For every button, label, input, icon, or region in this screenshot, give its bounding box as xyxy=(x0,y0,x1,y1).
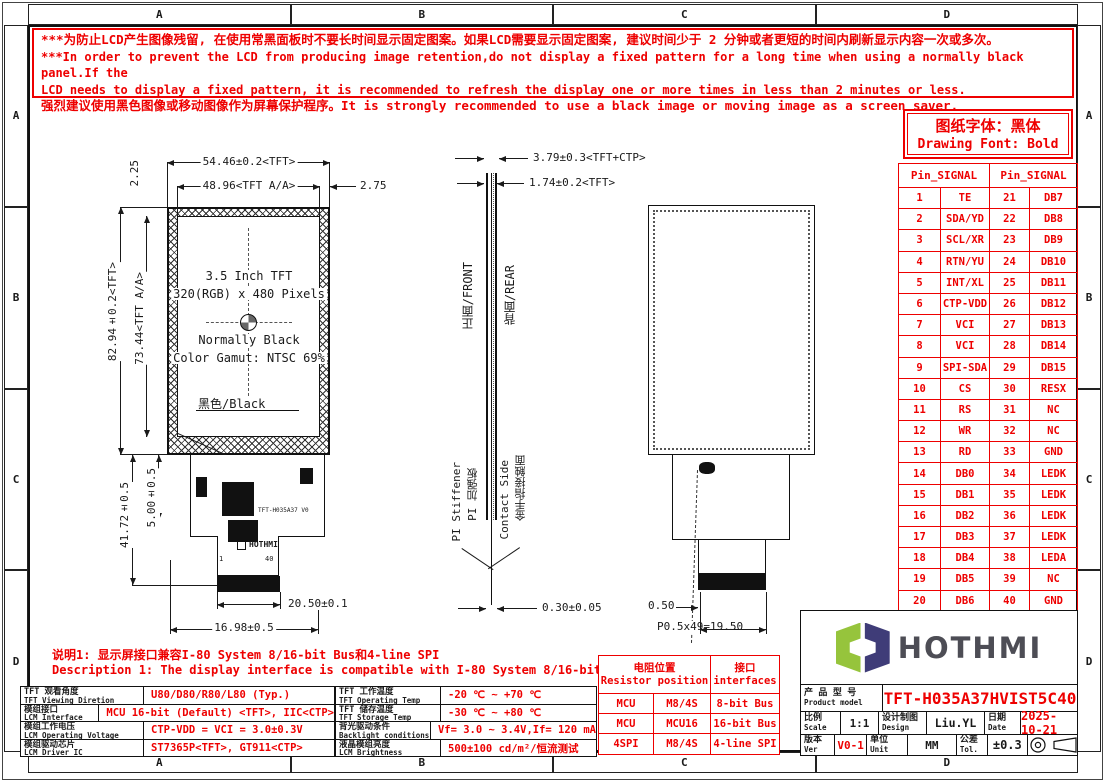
zone-label: B xyxy=(291,4,554,25)
pin-signal: NC xyxy=(1030,400,1077,420)
dim-fpc-len: 41.72±0.5 xyxy=(116,482,133,548)
dim-line-right-offset xyxy=(330,186,356,187)
spec-label: 模组驱动芯片 LCM Driver IC xyxy=(21,740,144,758)
zone-label: A xyxy=(1077,25,1101,207)
pin-signal: DB3 xyxy=(941,527,990,547)
zone-label: C xyxy=(4,389,28,571)
zone-strip-top: ABCD xyxy=(28,4,1078,25)
fpc-pin40-label: 40 xyxy=(265,556,273,562)
pin-number: 32 xyxy=(990,421,1030,441)
warning-line-en1: ***In order to prevent the LCD from prod… xyxy=(41,49,1065,82)
dim-side-tft: 1.74±0.2<TFT> xyxy=(527,177,617,189)
pin-table-row: 1 TE 21 DB7 xyxy=(899,188,1077,209)
zone-label: D xyxy=(816,4,1079,25)
font-note-zh: 图纸字体：黑体 xyxy=(908,116,1068,136)
version-value: V0-1 xyxy=(835,735,867,755)
pin-table-row: 12 WR 32 NC xyxy=(899,421,1077,442)
hothmi-logo-icon xyxy=(836,623,890,673)
resistor-table-header: 电阻位置 Resistor position 接口 interfaces xyxy=(599,656,779,694)
spec-label: TFT 工作温度 TFT Operating Temp xyxy=(336,687,441,704)
pin-number: 7 xyxy=(899,315,941,335)
zone-label: D xyxy=(1077,570,1101,752)
pin-signal: DB5 xyxy=(941,569,990,589)
panel-spec-line2: 320(RGB) x 480 Pixels xyxy=(171,288,327,300)
pin-number: 31 xyxy=(990,400,1030,420)
fpc-model-label: TFT-H035A37 V0 xyxy=(258,508,309,514)
ext-line xyxy=(318,610,319,634)
resistor-row: 4SPI M8/4S 4-line SPI xyxy=(599,734,779,754)
dim-seg xyxy=(455,158,484,159)
pin-table-row: 8 VCI 28 DB14 xyxy=(899,336,1077,357)
pin-signal: DB13 xyxy=(1030,315,1077,335)
spec-label: 模组接口 LCM Interface xyxy=(21,705,99,722)
zone-strip-left: ABCD xyxy=(4,25,28,752)
center-mark-icon xyxy=(240,314,257,331)
pin-signal: SCL/XR xyxy=(941,230,990,250)
spec-label: TFT 储存温度 TFT Storage Temp xyxy=(336,705,441,722)
spec-value: -30 ℃ ~ +80 ℃ xyxy=(441,705,596,722)
panel-spec-line1: 3.5 Inch TFT xyxy=(204,270,295,282)
date-value: 2025-10-21 xyxy=(1021,712,1077,734)
spec-value: Vf= 3.0 ~ 3.4V,If= 120 mA xyxy=(431,722,596,739)
pin-number: 23 xyxy=(990,230,1030,250)
ext-line xyxy=(177,186,178,216)
spec-value: CTP-VDD = VCI = 3.0±0.3V xyxy=(144,722,334,739)
pin-table-row: 3 SCL/XR 23 DB9 xyxy=(899,230,1077,251)
pin-signal: CS xyxy=(941,379,990,399)
fpc-component xyxy=(196,477,207,497)
zone-label: A xyxy=(28,4,291,25)
pin-signal: DB9 xyxy=(1030,230,1077,250)
spec-value: MCU 16-bit (Default) <TFT>, IIC<CTP> xyxy=(99,705,334,722)
rear-fpc-upper xyxy=(672,455,790,540)
pin-table-row: 20 DB6 40 GND xyxy=(899,591,1077,612)
spec-row: TFT 工作温度 TFT Operating Temp -20 ℃ ~ +70 … xyxy=(336,687,596,705)
dim-conn-w: 20.50±0.1 xyxy=(286,598,350,610)
title-block: HOTHMI 产 品 型 号 Product model TFT-H035A37… xyxy=(800,610,1078,756)
pin-table-row: 16 DB2 36 LEDK xyxy=(899,506,1077,527)
pin-table-row: 2 SDA/YD 22 DB8 xyxy=(899,209,1077,230)
zone-label: C xyxy=(553,4,816,25)
pin-signal: DB7 xyxy=(1030,188,1077,208)
pin-table-row: 17 DB3 37 LEDK xyxy=(899,527,1077,548)
pin-signal: DB4 xyxy=(941,548,990,568)
pin-table-header: Pin_SIGNAL Pin_SIGNAL xyxy=(899,164,1077,188)
spec-row: TFT 储存温度 TFT Storage Temp -30 ℃ ~ +80 ℃ xyxy=(336,705,596,723)
fpc-pin1-label: 1 xyxy=(219,556,223,562)
pin-signal: DB1 xyxy=(941,485,990,505)
rear-view-solder-dots xyxy=(653,210,810,450)
fpc-ic xyxy=(222,482,254,516)
rear-connector xyxy=(698,574,766,590)
pin-number: 19 xyxy=(899,569,941,589)
resistor-row: MCU M8/4S 8-bit Bus xyxy=(599,694,779,714)
warning-line-zh: ***为防止LCD产生图像残留, 在使用常黑面板时不要长时间显示固定图案。如果L… xyxy=(41,32,1065,49)
side-rear-label: 背面/REAR xyxy=(504,265,517,325)
pin-signal: CTP-VDD xyxy=(941,294,990,314)
pin-number: 10 xyxy=(899,379,941,399)
pin-signal: DB11 xyxy=(1030,273,1077,293)
side-stiffener-zh: PI 加强板 xyxy=(466,468,479,521)
pin-table-row: 10 CS 30 RESX xyxy=(899,379,1077,400)
pin-signal: SPI-SDA xyxy=(941,358,990,378)
fpc-logo-text: HOTHMI xyxy=(249,542,278,548)
dim-fpc-5: 5.00±0.5 xyxy=(143,468,160,527)
dim-line-conn-w xyxy=(217,604,280,605)
pin-table-row: 18 DB4 38 LEDA xyxy=(899,548,1077,569)
spec-table-left: TFT 观看角度 TFT Viewing Diretion U80/D80/R8… xyxy=(20,686,335,757)
panel-spec-line4: Color Gamut: NTSC 69% xyxy=(171,352,327,364)
ext-line xyxy=(120,207,167,208)
side-view-fpc-line xyxy=(491,520,492,605)
tolerance-value: ±0.3 xyxy=(988,735,1028,755)
side-contact-en: Contact Side xyxy=(498,460,511,539)
dim-height-tft: 82.94±0.2<TFT> xyxy=(104,262,121,361)
unit-value: MM xyxy=(908,735,957,755)
ext-line xyxy=(766,592,767,634)
pin-number: 34 xyxy=(990,463,1030,483)
fpc-connector xyxy=(217,576,280,592)
pin-number: 12 xyxy=(899,421,941,441)
pin-signal: GND xyxy=(1030,442,1077,462)
pin-signal: DB14 xyxy=(1030,336,1077,356)
spec-row: TFT 观看角度 TFT Viewing Diretion U80/D80/R8… xyxy=(21,687,334,705)
spec-row: 模组驱动芯片 LCM Driver IC ST7365P<TFT>, GT911… xyxy=(21,740,334,758)
font-note-en: Drawing Font: Bold xyxy=(908,136,1068,154)
pin-number: 30 xyxy=(990,379,1030,399)
dim-seg xyxy=(458,608,486,609)
pin-table-row: 11 RS 31 NC xyxy=(899,400,1077,421)
pin-number: 9 xyxy=(899,358,941,378)
pin-signal: LEDK xyxy=(1030,463,1077,483)
pin-table-row: 4 RTN/YU 24 DB10 xyxy=(899,252,1077,273)
fpc-component xyxy=(228,520,258,542)
resistor-header-position: 电阻位置 Resistor position xyxy=(599,656,711,693)
logo: HOTHMI xyxy=(801,611,1077,685)
pin-table-row: 15 DB1 35 LEDK xyxy=(899,485,1077,506)
spec-row: 液晶模组亮度 LCM Brightness 500±100 cd/m²/恒流测试 xyxy=(336,740,596,758)
pin-signal: NC xyxy=(1030,569,1077,589)
pin-number: 36 xyxy=(990,506,1030,526)
pin-table-row: 19 DB5 39 NC xyxy=(899,569,1077,590)
warning-box: ***为防止LCD产生图像残留, 在使用常黑面板时不要长时间显示固定图案。如果L… xyxy=(32,28,1074,98)
ext-line xyxy=(132,585,217,586)
scale-value: 1:1 xyxy=(841,712,879,734)
pin-number: 22 xyxy=(990,209,1030,229)
fpc-component xyxy=(300,468,313,484)
pin-signal: WR xyxy=(941,421,990,441)
pin-number: 24 xyxy=(990,252,1030,272)
design-value: Liu.YL xyxy=(927,712,985,734)
ext-line xyxy=(217,592,218,609)
pin-signal: DB10 xyxy=(1030,252,1077,272)
model-label-en: Product model xyxy=(804,699,882,708)
pin-number: 25 xyxy=(990,273,1030,293)
black-color-label: 黑色/Black xyxy=(196,398,299,411)
title-row-version: 版本 Ver V0-1 单位 Unit MM 公差 Tol. ±0.3 xyxy=(801,735,1077,755)
dim-side-total: 3.79±0.3<TFT+CTP> xyxy=(531,152,648,164)
pin-number: 18 xyxy=(899,548,941,568)
dim-conn-off: 16.98±0.5 xyxy=(212,622,276,634)
zone-strip-right: ABCD xyxy=(1077,25,1101,752)
pin-number: 4 xyxy=(899,252,941,272)
resistor-table: 电阻位置 Resistor position 接口 interfaces MCU… xyxy=(598,655,780,755)
pin-number: 35 xyxy=(990,485,1030,505)
pin-number: 29 xyxy=(990,358,1030,378)
pin-number: 5 xyxy=(899,273,941,293)
pin-signal: SDA/YD xyxy=(941,209,990,229)
dim-seg xyxy=(676,607,698,608)
pin-number: 37 xyxy=(990,527,1030,547)
pin-signal: VCI xyxy=(941,336,990,356)
pin-table-row: 5 INT/XL 25 DB11 xyxy=(899,273,1077,294)
dim-width-tft: 54.46±0.2<TFT> xyxy=(201,156,298,168)
projection-symbol-icon xyxy=(1028,735,1077,755)
spec-value: 500±100 cd/m²/恒流测试 xyxy=(441,740,596,758)
spec-label: TFT 观看角度 TFT Viewing Diretion xyxy=(21,687,144,704)
spec-row: 模组工作电压 LCM Operating Voltage CTP-VDD = V… xyxy=(21,722,334,740)
pin-number: 6 xyxy=(899,294,941,314)
pin-number: 15 xyxy=(899,485,941,505)
fpc-logo-icon xyxy=(237,541,246,550)
side-view-bar xyxy=(486,173,497,520)
resistor-row: MCU MCU16 16-bit Bus xyxy=(599,714,779,734)
pin-number: 33 xyxy=(990,442,1030,462)
zone-label: C xyxy=(1077,389,1101,571)
pin-signal: DB15 xyxy=(1030,358,1077,378)
pin-number: 26 xyxy=(990,294,1030,314)
note-zh: 说明1: 显示屏接口兼容I-80 System 8/16-bit Bus和4-l… xyxy=(52,646,439,663)
ext-line xyxy=(700,592,701,634)
pin-signal: GND xyxy=(1030,591,1077,611)
zone-label: B xyxy=(1077,207,1101,389)
pin-number: 14 xyxy=(899,463,941,483)
spec-label: 液晶模组亮度 LCM Brightness xyxy=(336,740,441,758)
pin-signal: DB2 xyxy=(941,506,990,526)
spec-label: 背光驱动条件 Backlight conditions xyxy=(336,722,431,739)
logo-text: HOTHMI xyxy=(898,631,1043,665)
pin-signal: INT/XL xyxy=(941,273,990,293)
rear-component xyxy=(699,462,715,474)
warning-line-en2: LCD needs to display a fixed pattern, it… xyxy=(41,82,1065,99)
dim-height-aa: 73.44<TFT A/A> xyxy=(131,272,148,365)
pin-table-row: 7 VCI 27 DB13 xyxy=(899,315,1077,336)
ext-line xyxy=(280,592,281,609)
title-row-scale: 比例 Scale 1:1 设计制图 Design Liu.YL 日期 Date … xyxy=(801,712,1077,735)
pin-table-row: 13 RD 33 GND xyxy=(899,442,1077,463)
pin-signal: LEDK xyxy=(1030,527,1077,547)
pin-number: 17 xyxy=(899,527,941,547)
pin-number: 39 xyxy=(990,569,1030,589)
dim-seg xyxy=(457,183,484,184)
pin-signal: RTN/YU xyxy=(941,252,990,272)
pin-number: 20 xyxy=(899,591,941,611)
pin-signal: NC xyxy=(1030,421,1077,441)
spec-value: ST7365P<TFT>, GT911<CTP> xyxy=(144,740,334,758)
pin-table-row: 6 CTP-VDD 26 DB12 xyxy=(899,294,1077,315)
pin-table-row: 14 DB0 34 LEDK xyxy=(899,463,1077,484)
pin-number: 13 xyxy=(899,442,941,462)
rear-fpc-lower xyxy=(698,540,766,574)
side-contact-zh: 金手指接触面 xyxy=(514,455,527,521)
pin-signal: VCI xyxy=(941,315,990,335)
dim-seg xyxy=(499,158,528,159)
dim-right-offset: 2.75 xyxy=(358,180,389,192)
pin-signal: RESX xyxy=(1030,379,1077,399)
pin-signal: RS xyxy=(941,400,990,420)
side-stiffener-en: PI Stiffener xyxy=(450,462,463,541)
pin-signal: DB8 xyxy=(1030,209,1077,229)
ext-line xyxy=(319,186,320,216)
font-note-box: 图纸字体：黑体 Drawing Font: Bold xyxy=(903,109,1073,159)
dim-line-rear-pitch xyxy=(700,629,766,630)
pin-signal: RD xyxy=(941,442,990,462)
pin-signal: LEDK xyxy=(1030,485,1077,505)
ext-line xyxy=(170,560,171,634)
spec-value: -20 ℃ ~ +70 ℃ xyxy=(441,687,596,704)
pin-signal: DB0 xyxy=(941,463,990,483)
pin-number: 40 xyxy=(990,591,1030,611)
pin-header-left: Pin_SIGNAL xyxy=(899,164,990,187)
zone-label: A xyxy=(4,25,28,207)
pin-number: 28 xyxy=(990,336,1030,356)
pin-signal: DB6 xyxy=(941,591,990,611)
pin-header-right: Pin_SIGNAL xyxy=(990,164,1077,187)
spec-label: 模组工作电压 LCM Operating Voltage xyxy=(21,722,144,739)
title-row-model: 产 品 型 号 Product model TFT-H035A37HVIST5C… xyxy=(801,685,1077,712)
pin-table-row: 9 SPI-SDA 29 DB15 xyxy=(899,358,1077,379)
pin-signal: LEDA xyxy=(1030,548,1077,568)
side-front-label: 正面/FRONT xyxy=(462,262,475,329)
dim-side-thickness: 0.30±0.05 xyxy=(540,602,604,614)
pin-signal: LEDK xyxy=(1030,506,1077,526)
pin-number: 8 xyxy=(899,336,941,356)
pin-number: 27 xyxy=(990,315,1030,335)
dim-seg xyxy=(497,608,537,609)
spec-table-middle: TFT 工作温度 TFT Operating Temp -20 ℃ ~ +70 … xyxy=(335,686,597,757)
pin-signal: DB12 xyxy=(1030,294,1077,314)
product-model-value: TFT-H035A37HVIST5C40 xyxy=(883,685,1077,711)
pin-number: 11 xyxy=(899,400,941,420)
spec-value: U80/D80/R80/L80 (Typ.) xyxy=(144,687,334,704)
spec-row: 模组接口 LCM Interface MCU 16-bit (Default) … xyxy=(21,705,334,723)
dim-top-offset: 2.25 xyxy=(126,160,143,187)
pin-signal: TE xyxy=(941,188,990,208)
dim-width-aa: 48.96<TFT A/A> xyxy=(201,180,298,192)
pin-number: 3 xyxy=(899,230,941,250)
zone-label: B xyxy=(4,207,28,389)
ext-line xyxy=(167,162,168,207)
panel-spec-line3: Normally Black xyxy=(196,334,301,346)
pin-number: 16 xyxy=(899,506,941,526)
pin-signal-table: Pin_SIGNAL Pin_SIGNAL 1 TE 21 DB7 2 SDA/… xyxy=(898,163,1078,613)
dim-rear-offset: 0.50 xyxy=(646,600,677,612)
pin-number: 2 xyxy=(899,209,941,229)
dim-seg xyxy=(497,183,524,184)
pin-number: 1 xyxy=(899,188,941,208)
pin-number: 21 xyxy=(990,188,1030,208)
resistor-header-interface: 接口 interfaces xyxy=(711,656,779,693)
spec-row: 背光驱动条件 Backlight conditions Vf= 3.0 ~ 3.… xyxy=(336,722,596,740)
pin-number: 38 xyxy=(990,548,1030,568)
